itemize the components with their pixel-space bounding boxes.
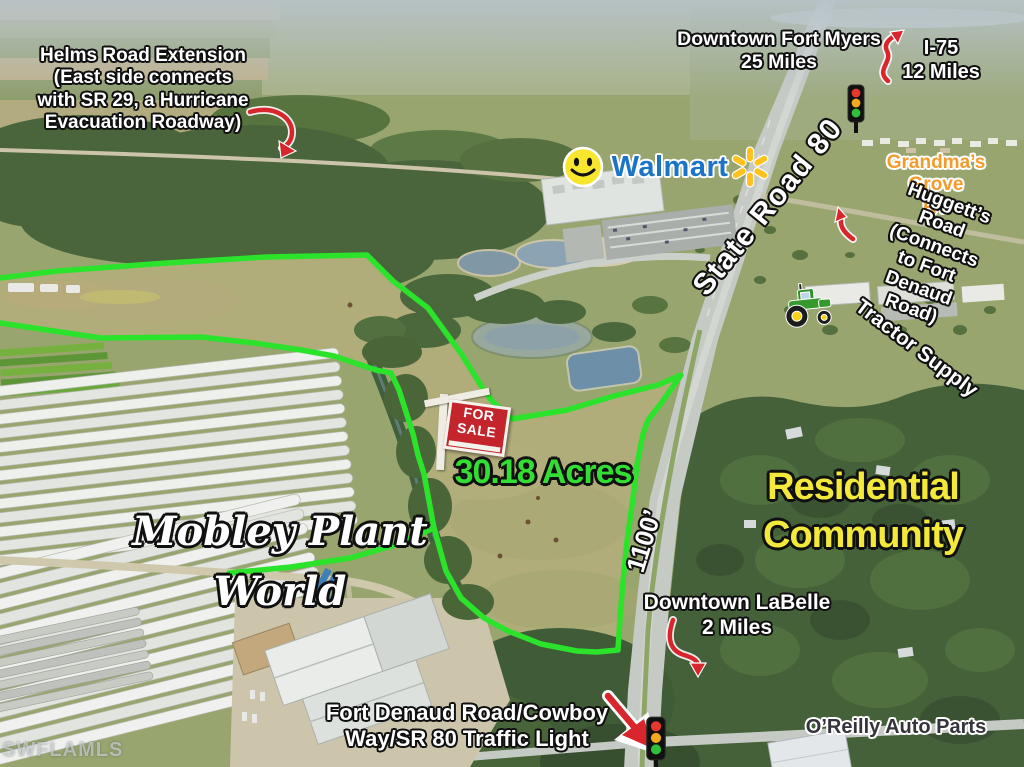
tractor-icon [776,278,839,336]
label-downtown-labelle: Downtown LaBelle 2 Miles [644,591,831,641]
sign-panel: FOR SALE [443,399,511,457]
aerial-listing-photo: Walmart [0,0,1024,767]
label-walmart: Walmart [612,150,729,184]
smiley-face-icon [562,146,604,188]
label-downtown-fort-myers: Downtown Fort Myers 25 Miles [677,28,881,74]
traffic-light-icon [845,84,867,136]
label-acreage: 30.18 Acres [455,452,632,492]
label-residential-community: Residential Community [763,464,963,559]
label-helms-road-extension: Helms Road Extension (East side connects… [37,45,248,135]
sign-strip [449,440,501,452]
label-fort-denaud-traffic-light: Fort Denaud Road/Cowboy Way/SR 80 Traffi… [326,700,608,752]
watermark: SWFLAMLS [2,739,123,762]
sign-text: FOR SALE [448,403,508,442]
traffic-light-icon [642,716,670,767]
label-oreilly-auto-parts: O’Reilly Auto Parts [806,716,986,740]
label-i75: I-75 12 Miles [902,37,980,84]
label-mobley-plant-world: Mobley Plant World [132,502,428,622]
